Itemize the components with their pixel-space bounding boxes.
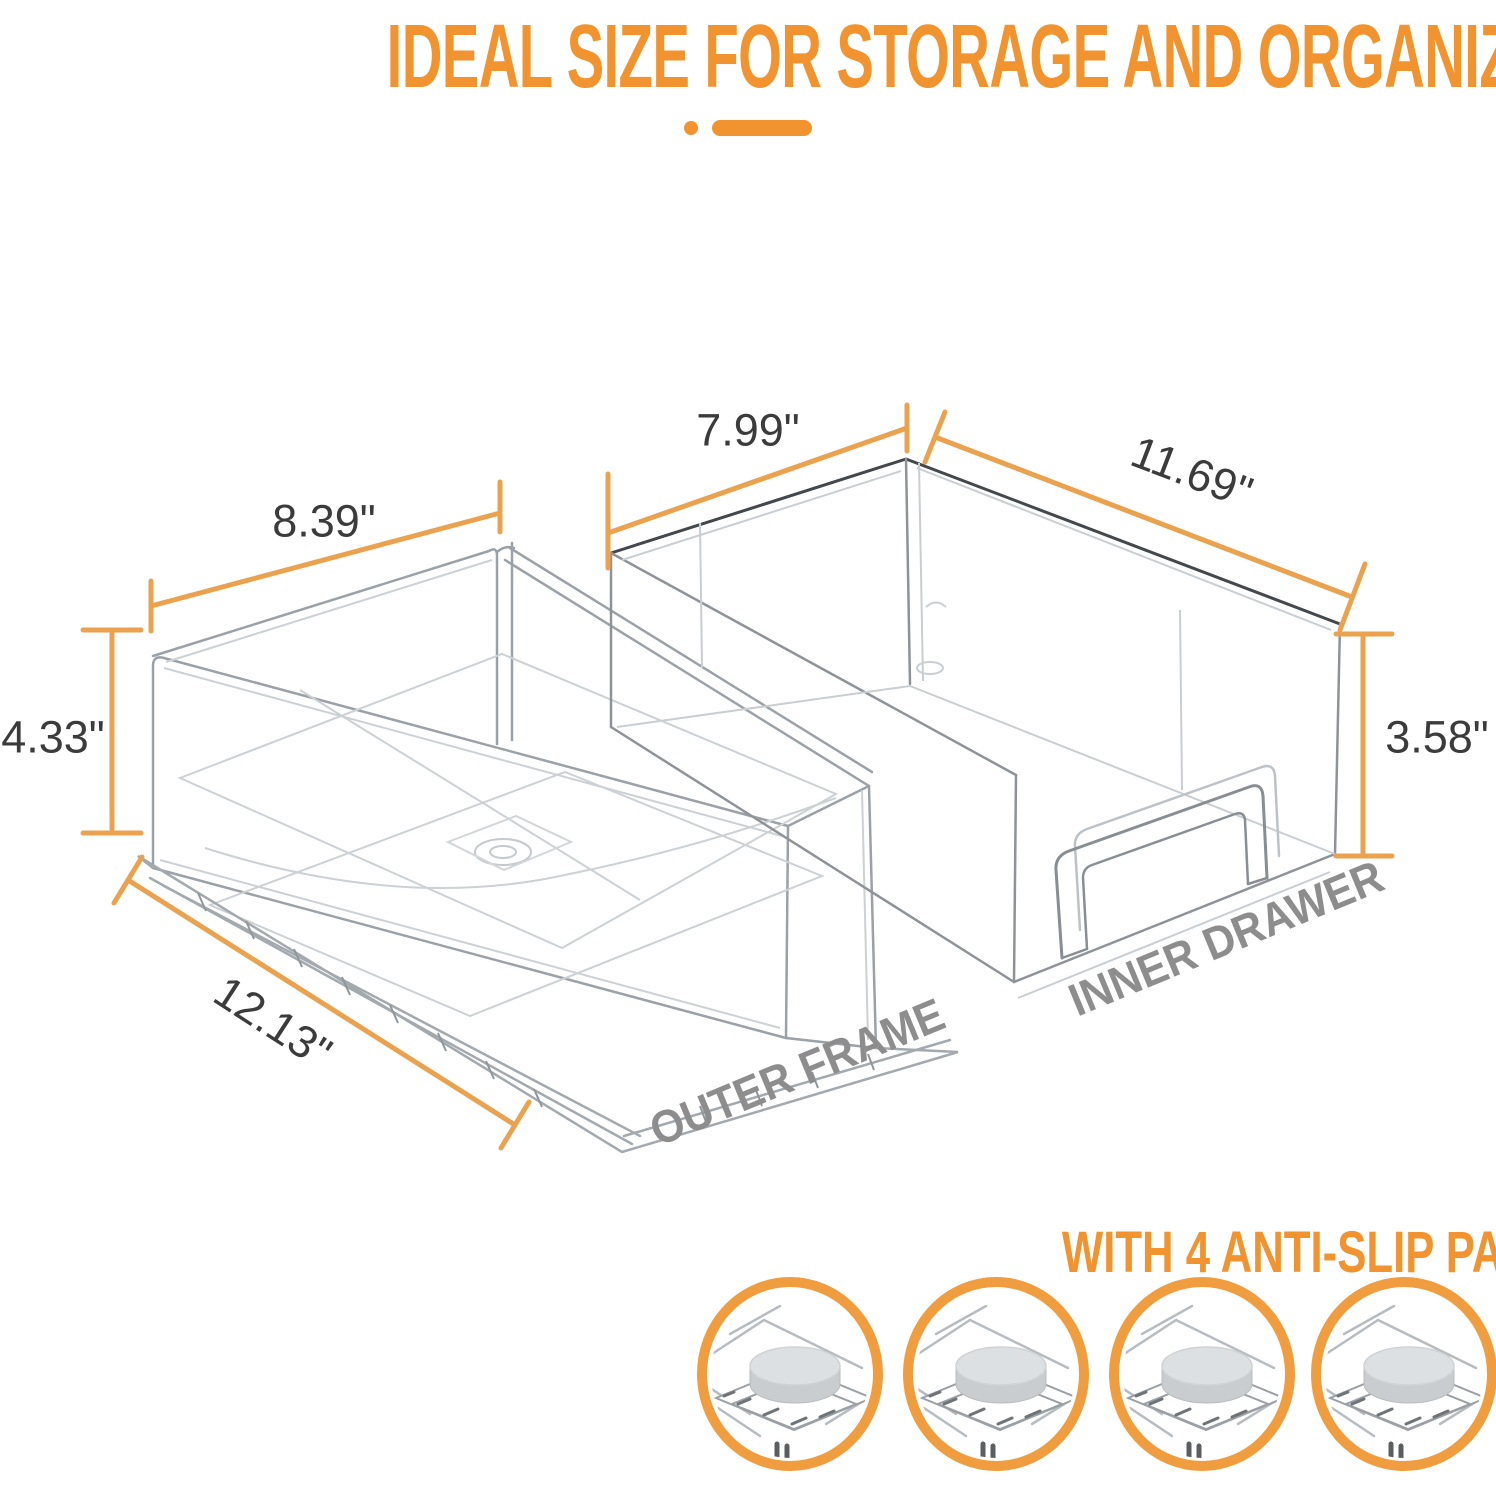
title-divider: [684, 120, 812, 136]
product-infographic: IDEAL SIZE FOR STORAGE AND ORGANIZATION …: [0, 0, 1496, 1496]
page-title: IDEAL SIZE FOR STORAGE AND ORGANIZATION: [387, 12, 1496, 102]
anti-slip-pad-circle: [908, 1282, 1084, 1466]
dimension-line-inner-height: [1336, 634, 1392, 856]
dimension-inner-height-label: 3.58": [1385, 715, 1489, 760]
dimension-inner-width-label: 7.99": [696, 408, 800, 453]
anti-slip-pads-heading: WITH 4 ANTI-SLIP PADS: [1062, 1224, 1496, 1282]
anti-slip-pad-circle: [1114, 1282, 1290, 1466]
divider-dot-icon: [684, 121, 698, 135]
anti-slip-pad-circle: [1316, 1282, 1492, 1466]
divider-dash-icon: [712, 120, 812, 136]
page-title-wrap: IDEAL SIZE FOR STORAGE AND ORGANIZATION: [0, 12, 1496, 102]
anti-slip-pads-heading-wrap: WITH 4 ANTI-SLIP PADS: [980, 1224, 1485, 1282]
dimension-outer-height-label: 4.33": [1, 715, 105, 760]
dimension-line-outer-depth: [114, 857, 529, 1148]
anti-slip-pads-row: [702, 1282, 1492, 1466]
dimension-outer-width-label: 8.39": [272, 499, 376, 544]
anti-slip-pad-circle: [702, 1282, 878, 1466]
